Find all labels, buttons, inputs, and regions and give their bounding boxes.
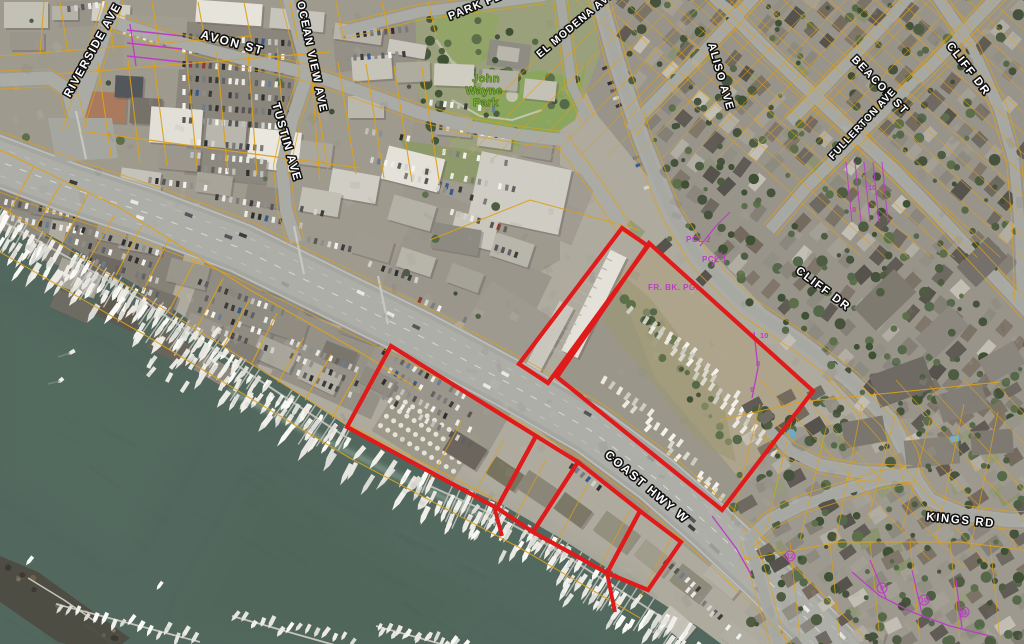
svg-text:8: 8	[852, 205, 856, 214]
svg-text:12: 12	[786, 554, 794, 561]
svg-text:10: 10	[760, 331, 768, 340]
svg-text:9: 9	[750, 385, 754, 394]
svg-text:Wayne: Wayne	[465, 85, 502, 97]
svg-text:11: 11	[960, 610, 968, 617]
svg-text:9: 9	[880, 586, 884, 593]
svg-text:10: 10	[920, 598, 928, 605]
svg-text:8: 8	[756, 359, 760, 368]
svg-text:Park: Park	[473, 97, 499, 109]
svg-text:John: John	[472, 73, 500, 85]
svg-text:FR. BK. PG.: FR. BK. PG.	[648, 283, 698, 292]
svg-text:10: 10	[868, 183, 876, 192]
